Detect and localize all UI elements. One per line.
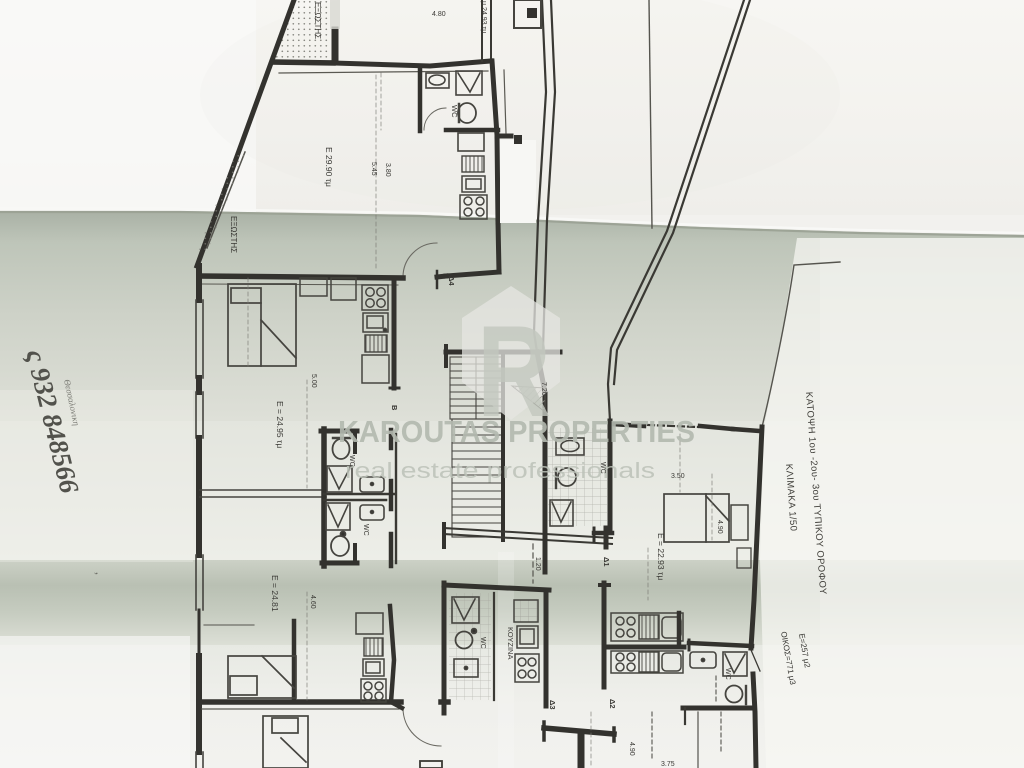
svg-text:Δ4: Δ4: [447, 276, 456, 286]
svg-text:Ε 29.90 τμ: Ε 29.90 τμ: [324, 147, 334, 187]
svg-text:Δ1: Δ1: [602, 557, 611, 567]
svg-text:KAROUTAS PROPERTIES: KAROUTAS PROPERTIES: [338, 414, 695, 449]
svg-text:ΚΟΥΖΙΝΑ: ΚΟΥΖΙΝΑ: [506, 627, 515, 659]
svg-text:3.80: 3.80: [384, 163, 391, 177]
svg-text:4.60: 4.60: [309, 595, 316, 609]
svg-text:4.80: 4.80: [432, 11, 446, 18]
svg-text:ΕΞΩΣΤΗΣ: ΕΞΩΣΤΗΣ: [313, 2, 322, 39]
svg-text:WC: WC: [362, 524, 369, 536]
svg-text:3.50: 3.50: [671, 473, 685, 480]
svg-text:4.90: 4.90: [628, 742, 635, 756]
svg-text:ΕΞΩΣΤΗΣ: ΕΞΩΣΤΗΣ: [229, 216, 238, 253]
svg-text:7.20: 7.20: [540, 382, 547, 396]
svg-text:Ε = 22.93 τμ: Ε = 22.93 τμ: [656, 533, 666, 580]
svg-text:μ 24.93 τμ: μ 24.93 τμ: [480, 1, 487, 33]
svg-text:4.90: 4.90: [716, 520, 723, 534]
svg-text:WC: WC: [450, 105, 459, 118]
svg-text:WC: WC: [724, 668, 731, 680]
svg-text:WC: WC: [479, 637, 486, 649]
svg-text:Β: Β: [390, 405, 399, 411]
svg-text:WC: WC: [348, 455, 355, 467]
svg-text:WC: WC: [599, 462, 606, 474]
svg-text:5.45: 5.45: [370, 162, 377, 176]
svg-text:Ε = 24.95 τμ: Ε = 24.95 τμ: [275, 401, 285, 448]
svg-text:5.00: 5.00: [310, 374, 317, 388]
svg-text:3.75: 3.75: [661, 761, 675, 768]
svg-text:Ε = 24.81: Ε = 24.81: [270, 575, 280, 612]
svg-text:real estate professionals: real estate professionals: [345, 458, 655, 483]
svg-text:1.20: 1.20: [534, 557, 541, 571]
svg-text:Δ2: Δ2: [608, 699, 617, 709]
svg-text:Δ3: Δ3: [548, 700, 557, 710]
